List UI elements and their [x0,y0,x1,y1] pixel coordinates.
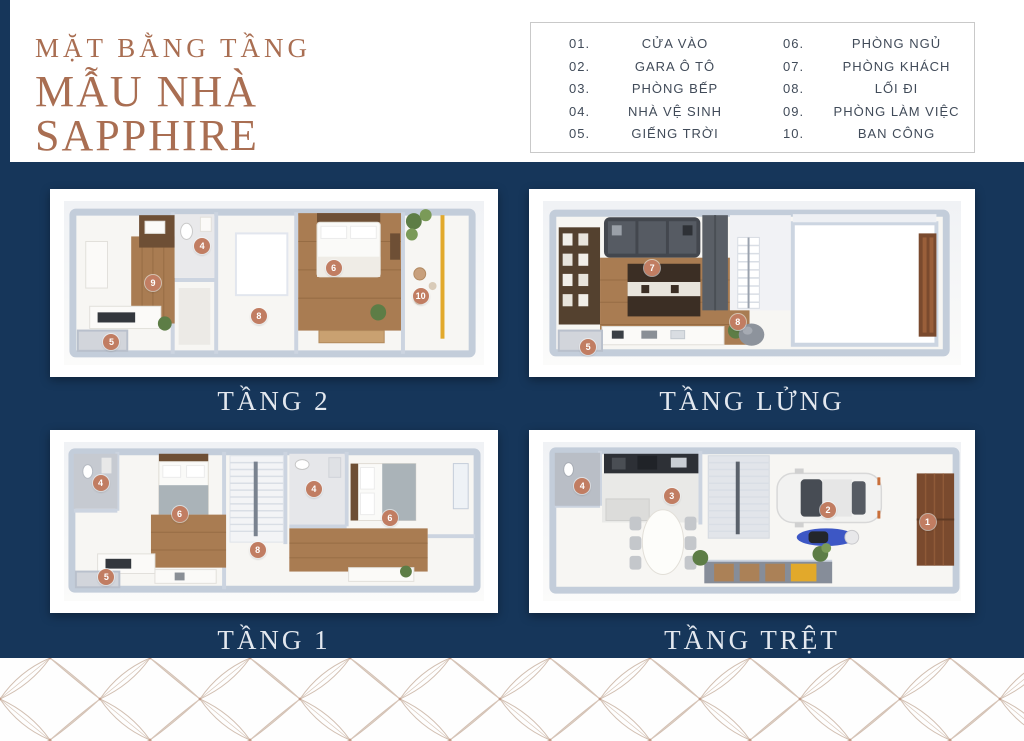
floor-plan-card: 4321 [529,430,975,613]
legend-label: GIẾNG TRỜI [605,126,745,141]
page-subtitle: MẶT BẰNG TẦNG [35,33,445,64]
legend-number: 10. [783,126,819,141]
room-number-badge: 4 [194,238,210,254]
floor-caption: TẦNG 2 [50,386,498,417]
room-number-badge: 4 [93,475,109,491]
legend-label: GARA Ô TÔ [605,59,745,74]
room-number-badge: 10 [413,288,429,304]
legend-column-1: 01.CỬA VÀO 02.GARA Ô TÔ 03.PHÒNG BẾP 04.… [531,36,745,141]
floor-plan-image-tang-2: 9486105 [64,201,484,365]
floor-caption: TẦNG LỬNG [529,386,975,417]
left-accent-bar [0,0,10,162]
floor-plan-section-tang-lung: 785 TẦNG LỬNG [529,189,975,417]
room-number-badge: 4 [306,481,322,497]
floor-caption: TẦNG 1 [50,625,498,656]
legend-number: 09. [783,104,819,119]
room-number-badge: 7 [644,260,660,276]
legend-number: 03. [569,81,605,96]
page-title: MẪU NHÀ SAPPHIRE [35,70,445,158]
badge-layer: 785 [543,201,961,365]
legend-label: PHÒNG LÀM VIỆC [819,104,974,119]
title-block: MẶT BẰNG TẦNG MẪU NHÀ SAPPHIRE [35,33,445,174]
room-number-badge: 6 [172,506,188,522]
floor-plan-image-tang-lung: 785 [543,201,961,365]
floor-plan-section-tang-1: 468465 TẦNG 1 [50,430,498,656]
legend-number: 05. [569,126,605,141]
legend-label: LỐI ĐI [819,81,974,96]
room-number-badge: 5 [98,569,114,585]
legend-item: 10.BAN CÔNG [745,126,974,141]
legend-item: 06.PHÒNG NGỦ [745,36,974,51]
legend-label: PHÒNG KHÁCH [819,59,974,74]
legend-item: 04.NHÀ VỆ SINH [531,104,745,119]
lattice-svg [0,658,1024,741]
legend-item: 02.GARA Ô TÔ [531,59,745,74]
room-number-badge: 5 [103,334,119,350]
floor-plan-image-tang-tret: 4321 [543,442,961,601]
legend-number: 01. [569,36,605,51]
legend-item: 03.PHÒNG BẾP [531,81,745,96]
room-number-badge: 8 [730,314,746,330]
room-number-badge: 8 [250,542,266,558]
brochure-page: MẶT BẰNG TẦNG MẪU NHÀ SAPPHIRE 01.CỬA VÀ… [0,0,1024,741]
legend-item: 01.CỬA VÀO [531,36,745,51]
badge-layer: 9486105 [64,201,484,365]
legend-item: 08.LỐI ĐI [745,81,974,96]
legend-item: 05.GIẾNG TRỜI [531,126,745,141]
room-number-badge: 2 [820,502,836,518]
badge-layer: 468465 [64,442,484,601]
floor-plan-section-tang-2: 9486105 TẦNG 2 [50,189,498,417]
floor-plan-card: 468465 [50,430,498,613]
badge-layer: 4321 [543,442,961,601]
legend-label: PHÒNG BẾP [605,81,745,96]
legend-item: 07.PHÒNG KHÁCH [745,59,974,74]
room-number-badge: 4 [574,478,590,494]
floor-plan-card: 9486105 [50,189,498,377]
room-number-badge: 5 [580,339,596,355]
legend-number: 04. [569,104,605,119]
room-number-badge: 9 [145,275,161,291]
legend-label: BAN CÔNG [819,126,974,141]
legend-number: 07. [783,59,819,74]
legend-label: CỬA VÀO [605,36,745,51]
decorative-lattice-pattern [0,658,1024,741]
legend-number: 08. [783,81,819,96]
room-number-badge: 6 [382,510,398,526]
floor-plan-card: 785 [529,189,975,377]
floor-caption: TẦNG TRỆT [529,625,975,656]
room-number-badge: 1 [920,514,936,530]
legend-number: 06. [783,36,819,51]
floor-plan-section-tang-tret: 4321 TẦNG TRỆT [529,430,975,656]
legend-label: NHÀ VỆ SINH [605,104,745,119]
legend-item: 09.PHÒNG LÀM VIỆC [745,104,974,119]
room-number-badge: 3 [664,488,680,504]
floor-plan-image-tang-1: 468465 [64,442,484,601]
legend-box: 01.CỬA VÀO 02.GARA Ô TÔ 03.PHÒNG BẾP 04.… [530,22,975,153]
legend-label: PHÒNG NGỦ [819,36,974,51]
legend-column-2: 06.PHÒNG NGỦ 07.PHÒNG KHÁCH 08.LỐI ĐI 09… [745,36,974,141]
floor-plans-board: 9486105 TẦNG 2 [0,162,1024,658]
room-number-badge: 6 [326,260,342,276]
room-number-badge: 8 [251,308,267,324]
legend-number: 02. [569,59,605,74]
